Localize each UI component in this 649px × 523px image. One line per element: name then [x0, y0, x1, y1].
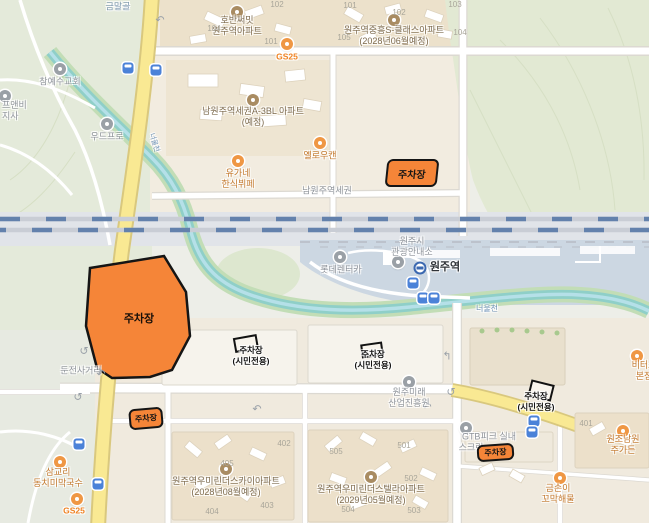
apartment-icon-a3bl[interactable] [247, 94, 259, 106]
poi-label-line: 프앤비 [2, 100, 27, 110]
poi-gs25-top[interactable]: GS25 [276, 52, 298, 63]
poi-label-line: 꼬막해물 [541, 494, 574, 504]
poi-jungheung-apt[interactable]: 원주역중흥S-클래스아파트(2028년06월예정) [344, 25, 444, 48]
river-label: 너울천 [476, 304, 498, 314]
block-number: 501 [397, 441, 410, 451]
restaurant-icon-yellowcan[interactable] [314, 137, 326, 149]
icon-glyph [396, 260, 400, 264]
parking-label-line: (시민전용) [355, 360, 392, 370]
restaurant-icon-yugane[interactable] [232, 155, 244, 167]
poi-label-line: 원주역중흥S-클래스아파트 [344, 25, 444, 35]
block-number: 104 [453, 28, 466, 38]
poi-label-line: 남원주역세권A-3BL 아파트 [202, 106, 304, 116]
icon-glyph [318, 141, 322, 145]
block-number: 101 [264, 37, 277, 47]
bus-stop-icon[interactable] [527, 427, 538, 438]
road-label-namwonju: 남원주역세권 [302, 185, 352, 196]
poi-label-line: 원주역우미린더스텔라아파트 [317, 484, 425, 494]
parking-badge-southeast[interactable]: 주차장 [476, 443, 514, 463]
poi-label-line: 동치미막국수 [33, 478, 83, 488]
valley-label-geummalgol: 금말골 [106, 1, 131, 12]
poi-a3bl-apt[interactable]: 남원주역세권A-3BL 아파트(예정) [202, 106, 304, 129]
parking-label-large-lot[interactable]: 주차장 [124, 313, 154, 327]
poi-label-line: 비터스 [632, 360, 649, 370]
icon-glyph [236, 159, 240, 163]
bus-stop-icon[interactable] [123, 63, 134, 74]
block-number: 405 [220, 459, 233, 469]
icon-glyph [392, 18, 396, 22]
bus-stop-icon[interactable] [429, 293, 440, 304]
icon-glyph [125, 65, 132, 68]
block-number: 103 [448, 0, 461, 10]
icon-glyph [410, 280, 417, 283]
icon-glyph [153, 67, 160, 70]
block-number: 102 [270, 0, 283, 10]
icon-glyph [251, 98, 255, 102]
poi-label-line: (2029년05월예정) [336, 495, 405, 505]
poi-yugane[interactable]: 유가네한식뷔페 [221, 168, 254, 191]
icon-glyph [58, 67, 62, 71]
uturn-arrow: ↺ [79, 345, 88, 358]
bus-stop-icon[interactable] [93, 479, 104, 490]
poi-label-line: (2028년08월예정) [191, 487, 260, 497]
poi-church[interactable]: 참예수교회 [39, 76, 80, 87]
icon-glyph [105, 122, 109, 126]
poi-label-line: 주가든 [611, 445, 636, 455]
block-number: 105 [337, 33, 350, 43]
poi-label-line: 본점 [636, 371, 649, 381]
poi-lotte-rentacar[interactable]: 롯데렌터카 [320, 264, 361, 275]
poi-label-line: 관광안내소 [391, 247, 432, 257]
block-number: 504 [341, 505, 354, 515]
parking-badge-southwest[interactable]: 주차장 [128, 407, 164, 431]
icon-glyph [529, 429, 536, 432]
map-canvas[interactable] [0, 0, 649, 523]
poi-namwon-garden[interactable]: 원조남원주가든 [606, 434, 639, 457]
parking-label-line: 주차장 [524, 391, 547, 401]
icon-glyph [431, 295, 438, 298]
poi-gtb-screen[interactable]: GTB피크 실내 [462, 431, 516, 442]
poi-gs25-bottom[interactable]: GS25 [63, 506, 85, 517]
icon-glyph [338, 255, 342, 259]
bus-stop-icon[interactable] [529, 416, 540, 427]
block-number: 402 [277, 439, 290, 449]
block-number: 502 [404, 474, 417, 484]
block-number: 503 [407, 506, 420, 516]
store-icon-gs25-bottom[interactable] [71, 493, 83, 505]
icon-glyph [58, 460, 62, 464]
poi-label-line: 원주역우미린더스카이아파트 [172, 476, 280, 486]
poi-label-line: 호반써밋 [220, 15, 253, 25]
parking-label-line: 주차장 [361, 349, 384, 359]
icon-glyph [369, 475, 373, 479]
parking-label-civilian-3[interactable]: 주차장(시민전용) [518, 391, 555, 413]
uturn-arrow: ↶ [96, 368, 105, 381]
block-number: 404 [205, 507, 218, 517]
icon-glyph [420, 295, 427, 298]
bus-stop-icon[interactable] [418, 293, 429, 304]
icon-glyph [75, 497, 79, 501]
poi-label-line: (예정) [242, 117, 265, 127]
icon-glyph [621, 429, 625, 433]
icon-glyph [285, 42, 289, 46]
uturn-arrow: ↺ [446, 386, 455, 399]
poi-label-line: 유가네 [226, 168, 251, 178]
poi-geumsoni[interactable]: 금손이꼬막해물 [541, 483, 574, 506]
store-icon-gs25-top[interactable] [281, 38, 293, 50]
poi-yellowcan[interactable]: 옐로우캔 [303, 150, 336, 161]
station-label-wonju[interactable]: 원주역 [430, 261, 460, 275]
map-viewport[interactable]: 금말골 남원주역세권 둔전사거리 너울천 너울천 ↶ ↺ ↶ ↺ ↰ ↺ ↶ ↶… [0, 0, 649, 523]
poi-chefnb[interactable]: 프앤비지사 [2, 100, 27, 123]
parking-label-line: (시민전용) [233, 356, 270, 366]
poi-label-line: 산업진흥원 [388, 398, 429, 408]
rentacar-icon-lotte[interactable] [334, 251, 346, 263]
poi-label-line: (2028년06월예정) [359, 36, 428, 46]
poi-label-line: 원주미래 [392, 387, 425, 397]
icon-glyph [3, 94, 7, 98]
bus-stop-icon[interactable] [408, 278, 419, 289]
poi-label-line: 금손이 [546, 483, 571, 493]
icon-glyph [464, 426, 468, 430]
bus-stop-icon[interactable] [74, 439, 85, 450]
block-number: 403 [260, 501, 273, 511]
icon-glyph [558, 476, 562, 480]
poi-label-line: 원조남원 [606, 434, 639, 444]
poi-label-line: 한식뷔페 [221, 179, 254, 189]
icon-glyph [531, 418, 538, 421]
parking-label-civilian-1[interactable]: 주차장(시민전용) [233, 345, 270, 367]
poi-biteos[interactable]: 비터스본점 [632, 360, 649, 383]
apartment-icon-stella[interactable] [365, 471, 377, 483]
uturn-arrow: ↰ [442, 350, 451, 363]
icon-glyph [95, 481, 102, 484]
train-station-icon[interactable] [414, 262, 427, 275]
poi-label-line: 원주시 [400, 236, 425, 246]
church-icon[interactable] [54, 63, 66, 75]
parking-label-line: (시민전용) [518, 402, 555, 412]
icon-glyph [407, 380, 411, 384]
block-number: 104 [207, 24, 220, 34]
icon-glyph [76, 441, 83, 444]
block-number: 505 [329, 447, 342, 457]
block-number: 102 [392, 8, 405, 18]
poi-label-line: 삼교리 [46, 467, 71, 477]
uturn-arrow: ↶ [155, 14, 164, 27]
poi-stella-apt[interactable]: 원주역우미린더스텔라아파트(2029년05월예정) [317, 484, 425, 507]
poi-label-line: 지사 [2, 111, 19, 121]
poi-samgyori[interactable]: 삼교리동치미막국수 [33, 467, 83, 490]
uturn-arrow: ↶ [252, 403, 261, 416]
poi-woodpro[interactable]: 우드프로 [90, 131, 123, 142]
parking-label-line: 주차장 [239, 345, 262, 355]
parking-label-civilian-2[interactable]: 주차장(시민전용) [355, 349, 392, 371]
block-number: 401 [579, 419, 592, 429]
business-icon-woodpro[interactable] [101, 118, 113, 130]
bus-stop-icon[interactable] [151, 65, 162, 76]
poi-sky-apt[interactable]: 원주역우미린더스카이아파트(2028년08월예정) [172, 476, 280, 499]
poi-tourist-info[interactable]: 원주시관광안내소 [391, 236, 432, 259]
icon-glyph [635, 354, 639, 358]
parking-badge-station-ne[interactable]: 주차장 [385, 159, 440, 187]
icon-glyph [235, 10, 239, 14]
block-number: 101 [343, 1, 356, 11]
uturn-arrow: ↺ [73, 391, 82, 404]
icon-glyph [417, 267, 424, 270]
poi-mirae-center[interactable]: 원주미래산업진흥원 [388, 387, 429, 410]
